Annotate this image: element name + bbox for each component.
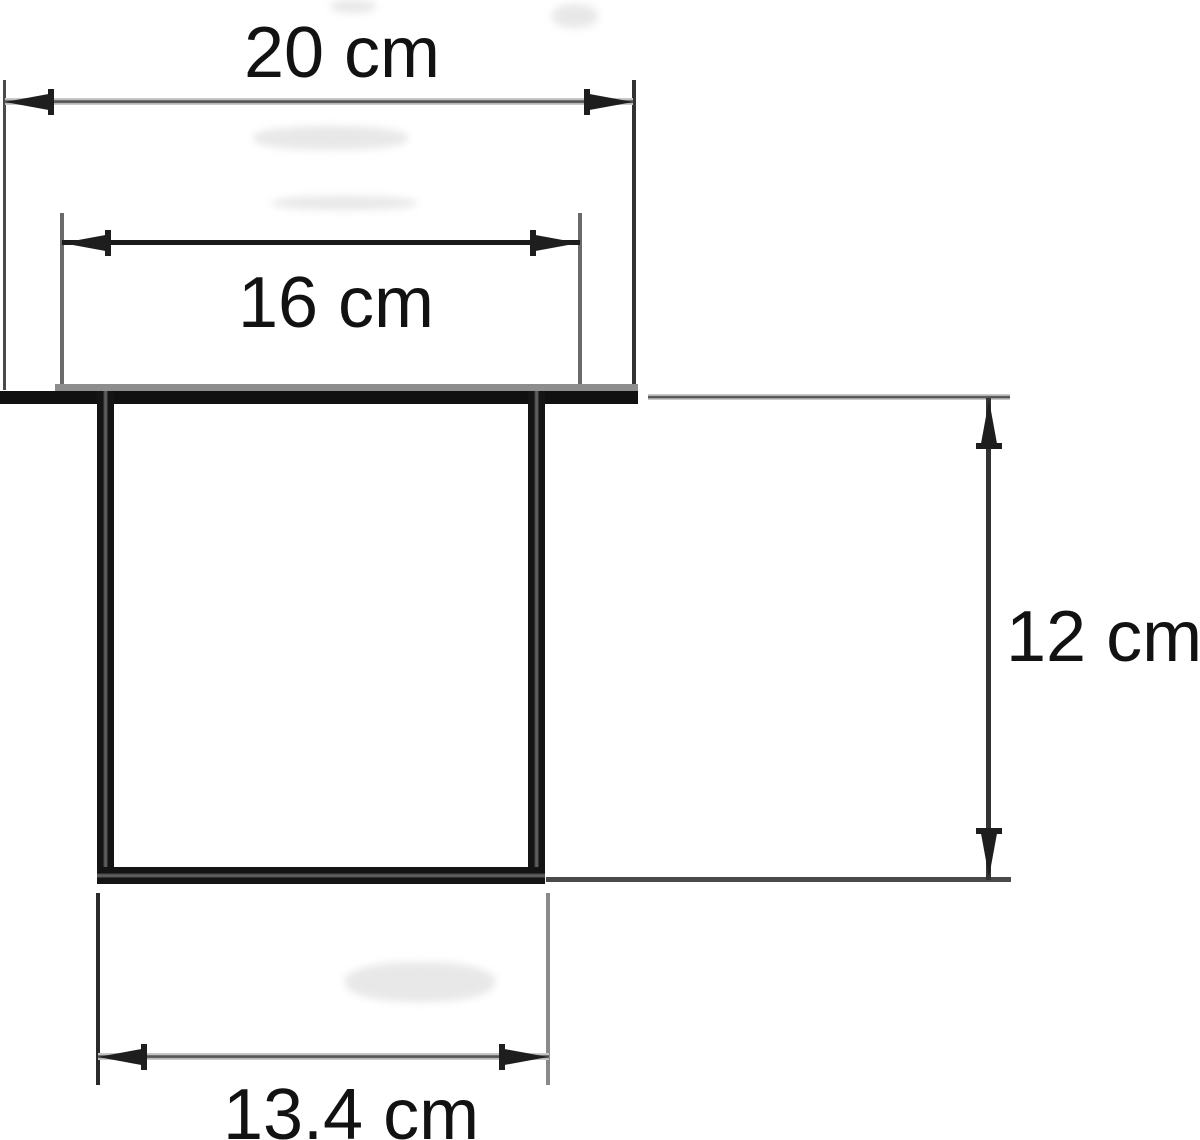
extension-line-20-right [632, 80, 636, 386]
arrowhead-left-icon [4, 87, 64, 117]
artifact-smudge [272, 196, 417, 210]
arrowhead-right-icon [574, 87, 634, 117]
artifact-smudge [552, 4, 598, 28]
arrowhead-right-icon [489, 1042, 549, 1072]
dimension-label-13-4cm: 13.4 cm [223, 1078, 479, 1140]
dimension-line-12 [986, 398, 991, 880]
dimension-label-20cm: 20 cm [244, 16, 440, 92]
flange-top-edge [55, 384, 638, 391]
channel-bottom [97, 867, 545, 884]
artifact-smudge [330, 0, 376, 13]
leader-line-top-right [648, 394, 1010, 400]
dimension-label-16cm: 16 cm [238, 266, 434, 342]
arrowhead-left-icon [97, 1042, 157, 1072]
leader-line-bottom-right [546, 877, 1011, 882]
arrowhead-right-icon [520, 228, 580, 258]
dimension-drawing: 20 cm 16 cm 12 cm 13.4 cm [0, 0, 1200, 1140]
dimension-line-20 [5, 98, 633, 105]
arrowhead-up-icon [974, 399, 1004, 459]
dimension-line-16 [62, 240, 580, 245]
artifact-smudge [345, 962, 495, 1002]
channel-wall-right [528, 391, 545, 884]
arrowhead-left-icon [61, 228, 121, 258]
dimension-line-134 [98, 1053, 549, 1060]
artifact-smudge [253, 126, 408, 150]
dimension-label-12cm: 12 cm [1006, 600, 1200, 676]
channel-wall-left [97, 391, 114, 884]
extension-line-20-left [3, 80, 6, 390]
arrowhead-down-icon [974, 818, 1004, 878]
